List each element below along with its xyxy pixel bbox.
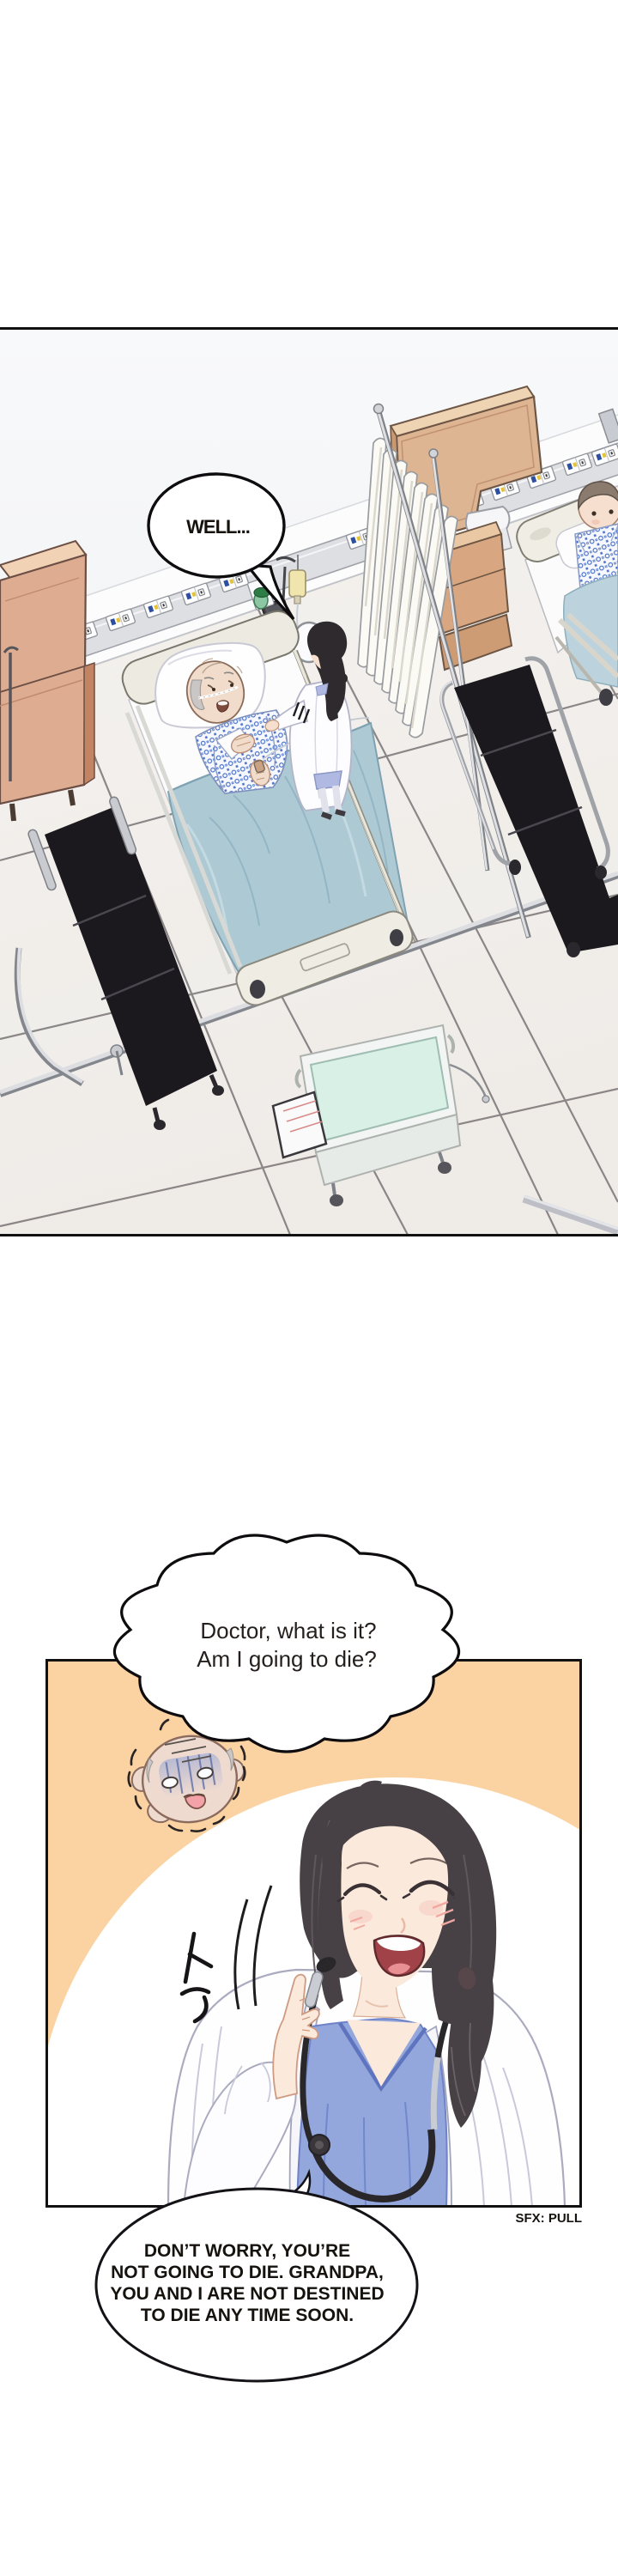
svg-text:Doctor, what is it?: Doctor, what is it? [200, 1618, 376, 1643]
svg-text:WELL...: WELL... [186, 516, 250, 538]
svg-text:TO DIE ANY TIME SOON.: TO DIE ANY TIME SOON. [141, 2306, 354, 2325]
svg-text:Am I going to die?: Am I going to die? [197, 1646, 377, 1672]
svg-text:YOU AND I ARE NOT DESTINED: YOU AND I ARE NOT DESTINED [110, 2284, 384, 2304]
svg-text:NOT GOING TO DIE. GRANDPA,: NOT GOING TO DIE. GRANDPA, [111, 2263, 384, 2282]
svg-text:SFX: PULL: SFX: PULL [516, 2211, 583, 2226]
svg-text:DON’T WORRY, YOU’RE: DON’T WORRY, YOU’RE [144, 2241, 350, 2261]
